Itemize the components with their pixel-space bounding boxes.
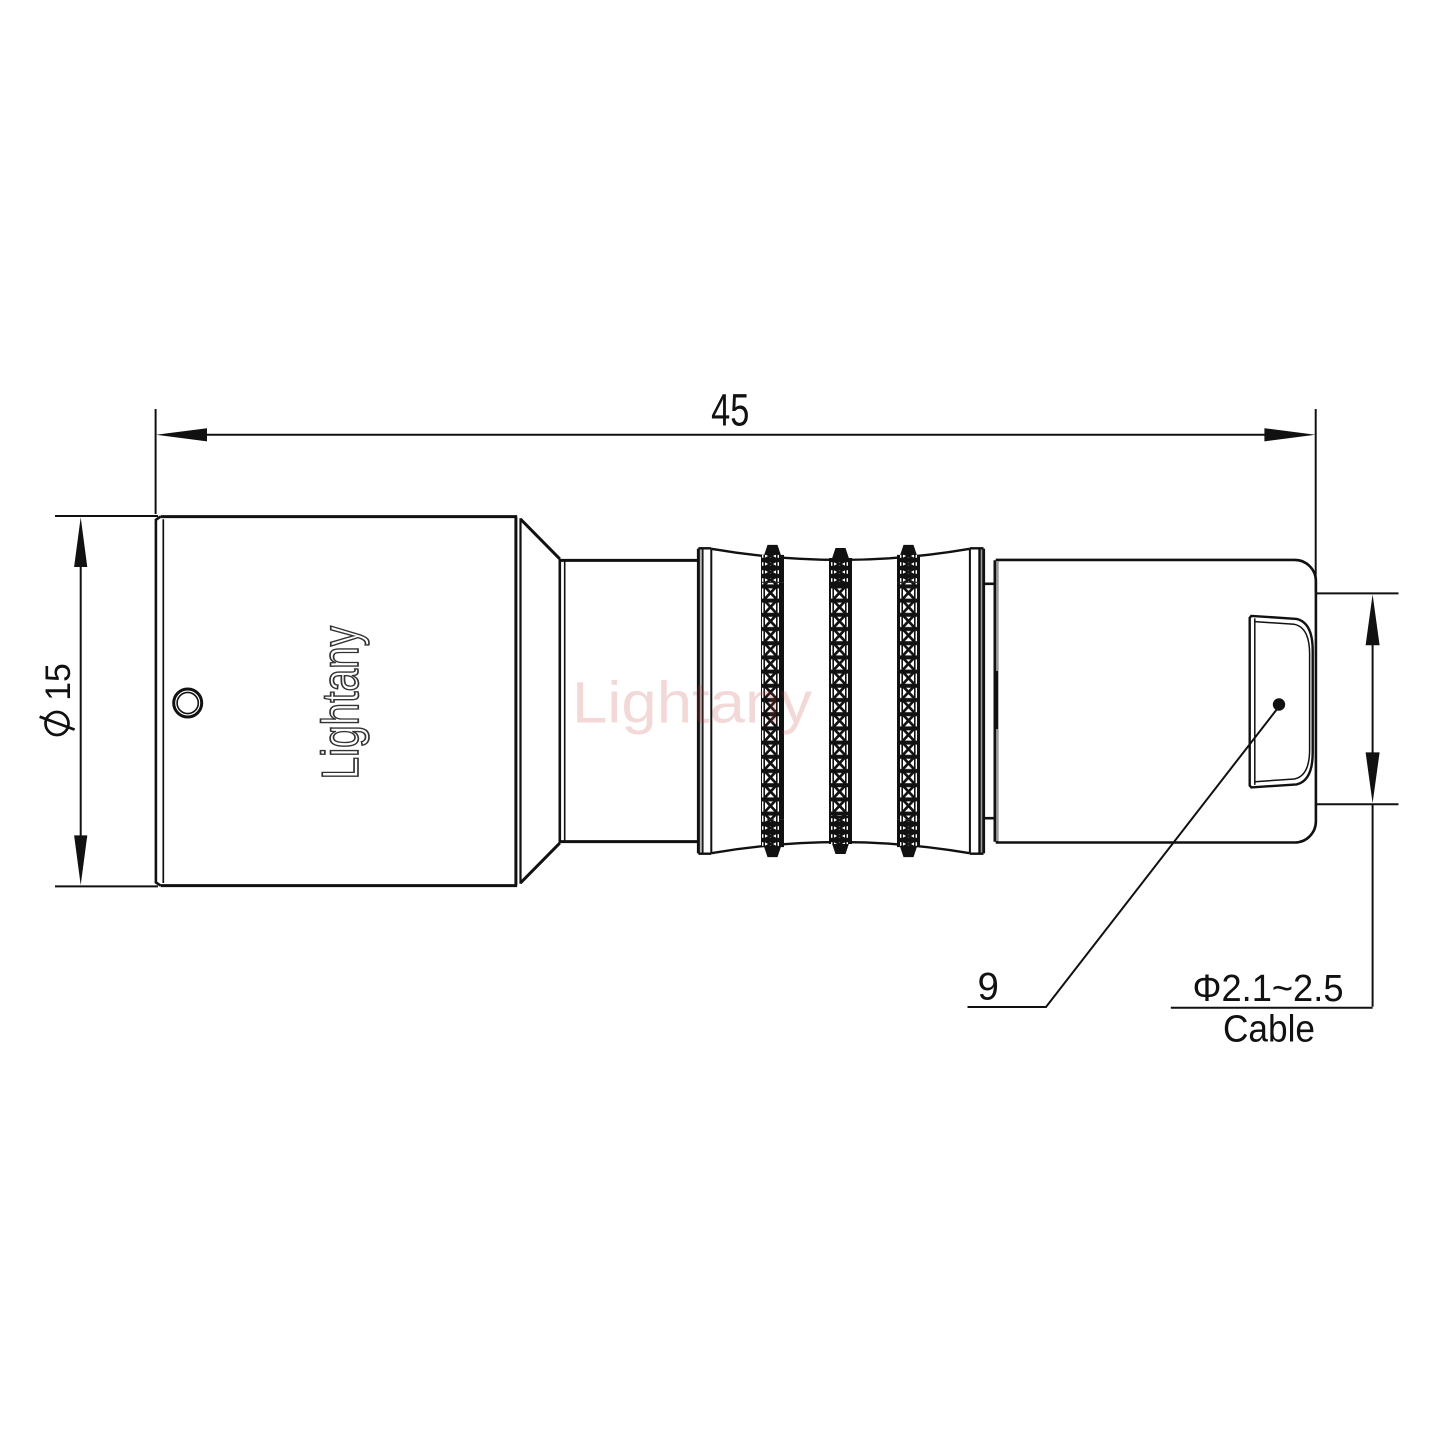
svg-text:9: 9 [977,965,998,1008]
svg-text:15: 15 [38,663,78,701]
svg-text:Cable: Cable [1223,1009,1315,1051]
svg-text:45: 45 [711,385,749,436]
svg-text:Lightany: Lightany [312,626,370,780]
svg-text:Lightany: Lightany [572,671,812,736]
svg-text:Φ2.1~2.5: Φ2.1~2.5 [1193,968,1344,1010]
